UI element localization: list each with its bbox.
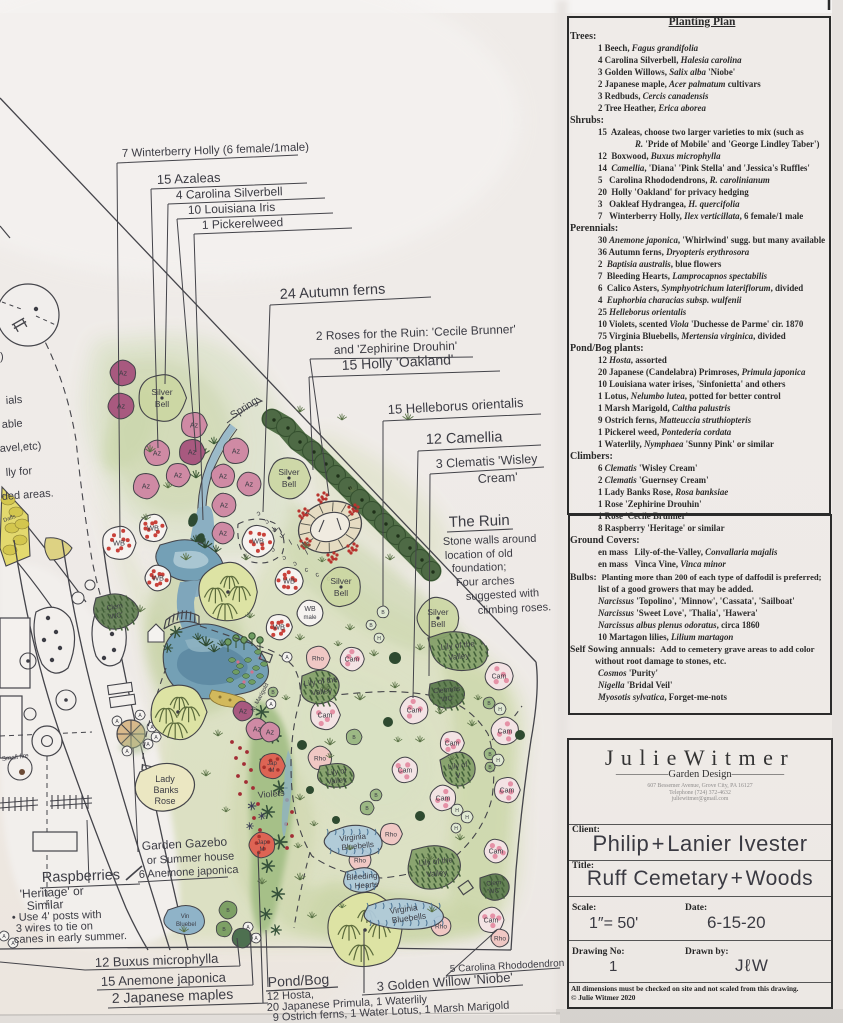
- svg-text:Cam: Cam: [407, 708, 422, 715]
- svg-text:): ): [0, 351, 4, 363]
- svg-text:12 Camellia: 12 Camellia: [426, 429, 504, 448]
- svg-text:Silver: Silver: [330, 576, 351, 586]
- svg-text:Bluebel: Bluebel: [176, 922, 196, 928]
- svg-text:lly for: lly for: [5, 465, 32, 479]
- svg-text:Az: Az: [266, 730, 275, 737]
- svg-text:Az: Az: [232, 449, 241, 456]
- svg-text:WB: WB: [113, 539, 125, 548]
- svg-text:15 Azaleas: 15 Azaleas: [157, 170, 222, 187]
- svg-text:1 Pickerelweed: 1 Pickerelweed: [202, 215, 284, 232]
- svg-text:Cam: Cam: [484, 918, 499, 925]
- svg-text:H: H: [454, 826, 458, 832]
- svg-text:Az: Az: [188, 450, 197, 457]
- svg-text:male: male: [303, 615, 317, 621]
- svg-text:Rho: Rho: [385, 831, 397, 838]
- svg-text:Cam: Cam: [318, 713, 333, 720]
- svg-text:'WC': 'WC': [439, 695, 454, 703]
- svg-text:Rho: Rho: [312, 655, 324, 662]
- svg-text:Cam: Cam: [489, 849, 504, 856]
- svg-text:H: H: [498, 707, 502, 713]
- svg-text:Az: Az: [153, 451, 162, 458]
- svg-text:Cam: Cam: [498, 729, 513, 736]
- svg-text:Az: Az: [245, 482, 254, 489]
- svg-text:WB: WB: [147, 524, 159, 533]
- svg-text:'WC': 'WC': [487, 887, 501, 895]
- svg-text:Lady: Lady: [155, 774, 175, 784]
- svg-text:ials: ials: [5, 394, 23, 407]
- svg-text:Cam: Cam: [500, 788, 515, 795]
- svg-text:Az: Az: [119, 371, 128, 378]
- svg-text:Az: Az: [220, 503, 229, 510]
- svg-text:Rho: Rho: [314, 755, 326, 762]
- svg-text:Cream': Cream': [477, 470, 518, 486]
- svg-text:Jap: Jap: [267, 761, 277, 767]
- svg-text:WB: WB: [283, 577, 295, 586]
- svg-text:Cam: Cam: [445, 741, 460, 748]
- svg-text:Bell: Bell: [334, 588, 348, 598]
- svg-text:Az: Az: [174, 473, 183, 480]
- svg-text:Pond/Bog: Pond/Bog: [267, 971, 329, 990]
- svg-text:Cam: Cam: [345, 657, 360, 664]
- svg-text:Jap: Jap: [257, 840, 267, 846]
- svg-text:Silver: Silver: [427, 607, 448, 617]
- svg-text:Four arches: Four arches: [456, 575, 516, 589]
- svg-text:H: H: [496, 758, 500, 764]
- svg-text:Az: Az: [219, 474, 228, 481]
- svg-text:Bell: Bell: [282, 479, 296, 489]
- svg-text:foundation;: foundation;: [452, 561, 507, 575]
- svg-text:Vin: Vin: [181, 914, 190, 920]
- svg-text:Rho: Rho: [354, 857, 366, 864]
- svg-text:Bell: Bell: [431, 619, 445, 629]
- svg-text:Az: Az: [117, 404, 126, 411]
- svg-text:Az: Az: [142, 484, 151, 491]
- svg-text:WB: WB: [152, 574, 164, 583]
- svg-text:H: H: [465, 815, 469, 821]
- svg-text:The Ruin: The Ruin: [449, 512, 510, 531]
- svg-text:H: H: [377, 636, 381, 642]
- svg-text:Silver: Silver: [278, 467, 299, 477]
- svg-text:M: M: [270, 768, 275, 774]
- svg-text:able: able: [1, 418, 23, 431]
- svg-text:Banks: Banks: [153, 785, 179, 795]
- svg-text:WB: WB: [304, 606, 316, 613]
- svg-text:Cam: Cam: [492, 674, 507, 681]
- svg-text:Silver: Silver: [151, 387, 172, 397]
- svg-text:Az: Az: [219, 531, 228, 538]
- svg-text:location of old: location of old: [445, 548, 513, 562]
- svg-text:Rose: Rose: [154, 796, 175, 806]
- svg-text:V.: V.: [455, 771, 463, 781]
- svg-text:Cam: Cam: [398, 768, 413, 775]
- svg-text:M: M: [260, 847, 265, 853]
- svg-text:H: H: [455, 808, 459, 814]
- svg-text:WB: WB: [273, 623, 285, 632]
- svg-text:Az: Az: [239, 709, 248, 716]
- svg-text:WB: WB: [252, 537, 264, 546]
- svg-text:Hearts: Hearts: [354, 880, 378, 891]
- svg-text:Cam: Cam: [436, 796, 451, 803]
- svg-text:Rho: Rho: [494, 935, 506, 942]
